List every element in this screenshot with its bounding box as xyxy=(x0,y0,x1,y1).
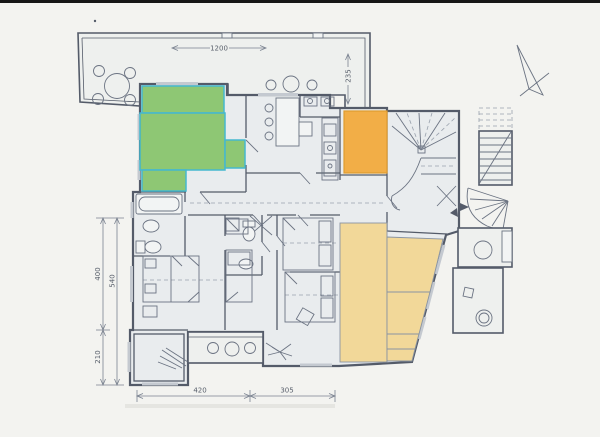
right-terrace xyxy=(453,228,512,333)
sink xyxy=(239,259,253,269)
dim-label-400: 400 xyxy=(94,267,102,280)
dim-label-235: 235 xyxy=(345,69,353,82)
bottom-balcony xyxy=(188,332,263,363)
dining-table xyxy=(276,98,299,146)
terrace-post xyxy=(222,33,232,38)
dim-label-1200: 1200 xyxy=(210,45,228,53)
sink xyxy=(143,220,159,232)
yellow-room-overlay xyxy=(340,223,443,362)
dim-label-210: 210 xyxy=(94,350,102,363)
terrace-post xyxy=(313,33,323,38)
dims-bottom: 420 305 xyxy=(137,387,335,403)
dim-label-420: 420 xyxy=(193,387,206,395)
floor-plan-drawing: 1200 235 400 540 210 xyxy=(0,0,600,437)
floor-plan-scan: 1200 235 400 540 210 xyxy=(0,0,600,437)
dim-label-540: 540 xyxy=(109,274,117,287)
external-stair xyxy=(460,108,512,229)
spiral-stair xyxy=(460,188,510,229)
north-arrow-icon xyxy=(517,45,549,96)
dim-label-305: 305 xyxy=(280,387,293,395)
orange-room-overlay xyxy=(344,111,387,173)
dims-left: 400 540 210 xyxy=(94,218,124,385)
toilet xyxy=(145,241,161,253)
